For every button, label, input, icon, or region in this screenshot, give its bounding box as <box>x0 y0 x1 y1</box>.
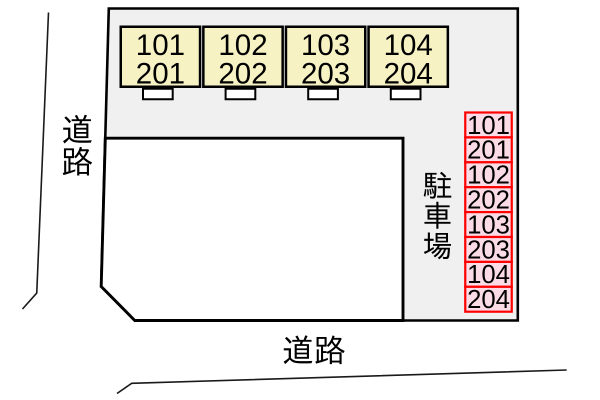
svg-text:203: 203 <box>467 236 510 264</box>
svg-text:102: 102 <box>467 162 510 190</box>
svg-text:101: 101 <box>467 112 510 140</box>
svg-text:204: 204 <box>467 286 510 314</box>
svg-text:203: 203 <box>301 58 350 91</box>
svg-text:204: 204 <box>384 58 433 91</box>
svg-text:202: 202 <box>467 187 510 215</box>
svg-text:201: 201 <box>467 137 510 165</box>
svg-text:104: 104 <box>467 261 510 289</box>
svg-text:201: 201 <box>136 58 185 91</box>
svg-text:103: 103 <box>467 211 510 239</box>
svg-text:202: 202 <box>218 58 267 91</box>
